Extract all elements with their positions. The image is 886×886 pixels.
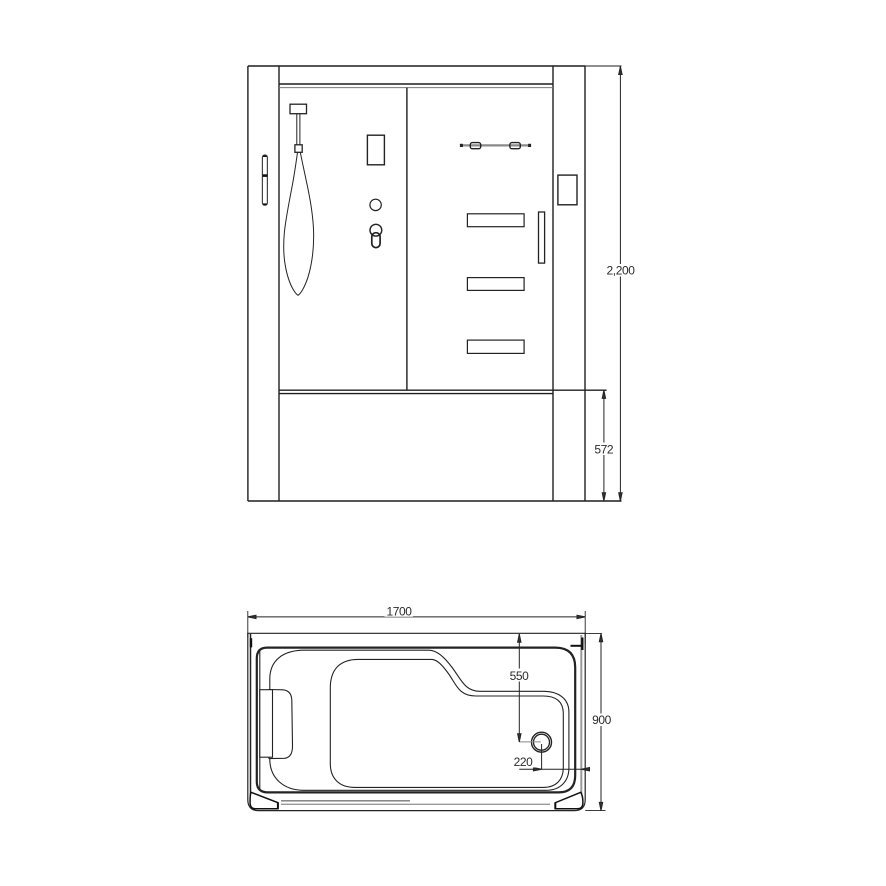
svg-text:220: 220 [514,755,534,769]
svg-text:572: 572 [594,443,614,457]
svg-text:900: 900 [592,713,612,727]
svg-text:1700: 1700 [386,604,412,618]
svg-text:550: 550 [510,669,530,683]
svg-text:2,200: 2,200 [606,263,635,277]
